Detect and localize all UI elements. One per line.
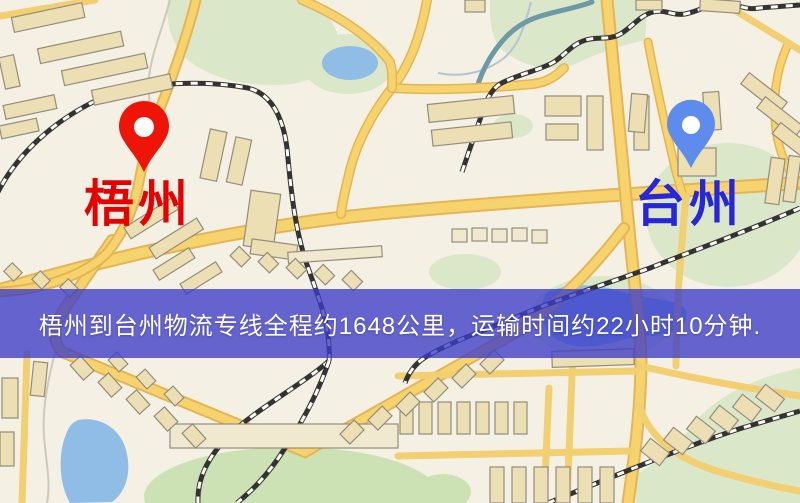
origin-pin-icon — [119, 101, 169, 172]
route-info-banner: 梧州到台州物流专线全程约1648公里，运输时间约22小时10分钟. — [0, 289, 800, 358]
route-info-text: 梧州到台州物流专线全程约1648公里，运输时间约22小时10分钟. — [39, 306, 761, 341]
pond — [61, 419, 129, 503]
map-canvas: 梧州 台州 — [0, 0, 800, 503]
destination-label: 台州 — [635, 176, 743, 232]
lake — [322, 46, 378, 80]
map-screenshot: 梧州 台州 梧州到台州物流专线全程约1648公里，运输时间约22小时10分钟. — [0, 0, 800, 503]
origin-label: 梧州 — [84, 176, 192, 232]
